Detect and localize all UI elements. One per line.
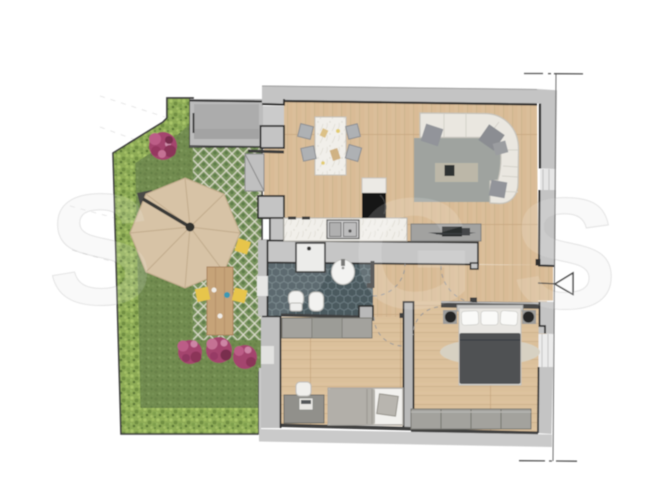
svg-text:G: G (352, 166, 475, 342)
svg-text:S: S (48, 162, 153, 338)
svg-text:S: S (512, 166, 617, 342)
